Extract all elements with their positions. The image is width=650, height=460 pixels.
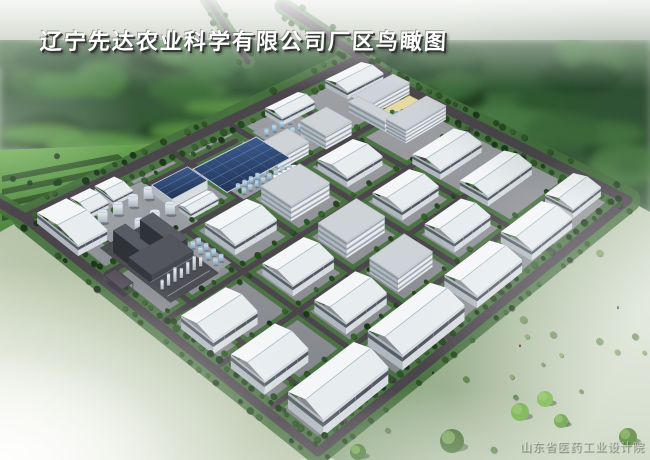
site-plan-canvas <box>0 0 650 460</box>
designer-watermark: 山东省医药工业设计院 <box>520 439 645 455</box>
image-title: 辽宁先达农业科学有限公司厂区鸟瞰图 <box>39 24 449 56</box>
storage-tank <box>113 201 124 217</box>
aerial-rendering: 辽宁先达农业科学有限公司厂区鸟瞰图 山东省医药工业设计院 <box>0 0 650 460</box>
storage-tank <box>128 194 139 210</box>
storage-tank <box>165 201 176 217</box>
